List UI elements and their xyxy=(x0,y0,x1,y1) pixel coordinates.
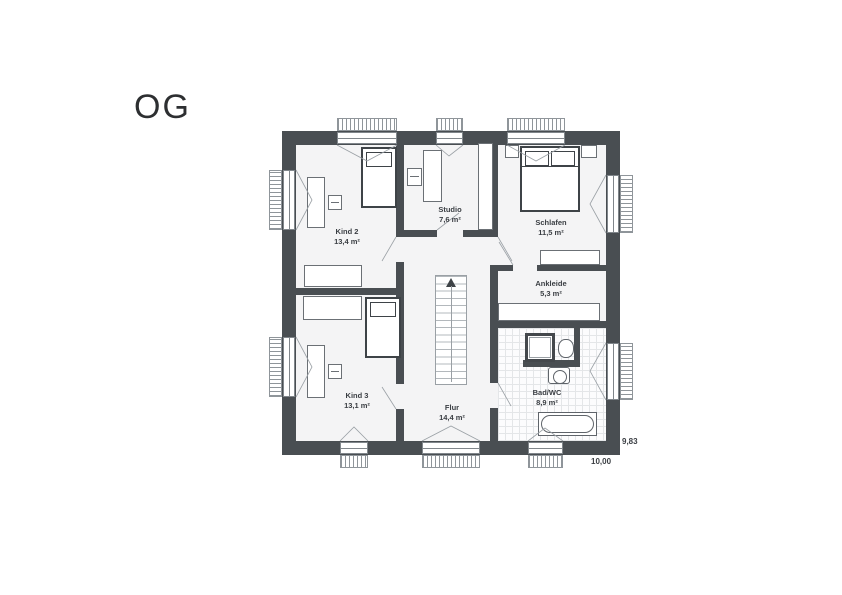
room-label-badwc: Bad/WC 8,9 m² xyxy=(533,388,562,408)
room-label-kind3: Kind 3 13,1 m² xyxy=(344,391,370,411)
room-area: 11,5 m² xyxy=(535,228,566,238)
room-area: 13,4 m² xyxy=(334,237,360,247)
room-area: 14,4 m² xyxy=(439,413,465,423)
page-title: OG xyxy=(134,88,191,127)
room-name: Bad/WC xyxy=(533,388,562,398)
room-label-flur: Flur 14,4 m² xyxy=(439,403,465,423)
room-name: Ankleide xyxy=(535,279,566,289)
room-label-schlafen: Schlafen 11,5 m² xyxy=(535,218,566,238)
room-label-studio: Studio 7,6 m² xyxy=(438,205,461,225)
room-name: Schlafen xyxy=(535,218,566,228)
dimension-width: 10,00 xyxy=(591,457,611,466)
room-name: Kind 2 xyxy=(334,227,360,237)
room-area: 5,3 m² xyxy=(535,289,566,299)
room-label-ankleide: Ankleide 5,3 m² xyxy=(535,279,566,299)
room-name: Flur xyxy=(439,403,465,413)
room-area: 8,9 m² xyxy=(533,398,562,408)
room-name: Kind 3 xyxy=(344,391,370,401)
floor-plan: Kind 2 13,4 m² Studio 7,6 m² Schlafen 11… xyxy=(282,131,620,455)
room-area: 7,6 m² xyxy=(438,215,461,225)
dimension-depth: 9,83 xyxy=(622,437,638,446)
room-area: 13,1 m² xyxy=(344,401,370,411)
room-label-kind2: Kind 2 13,4 m² xyxy=(334,227,360,247)
room-name: Studio xyxy=(438,205,461,215)
